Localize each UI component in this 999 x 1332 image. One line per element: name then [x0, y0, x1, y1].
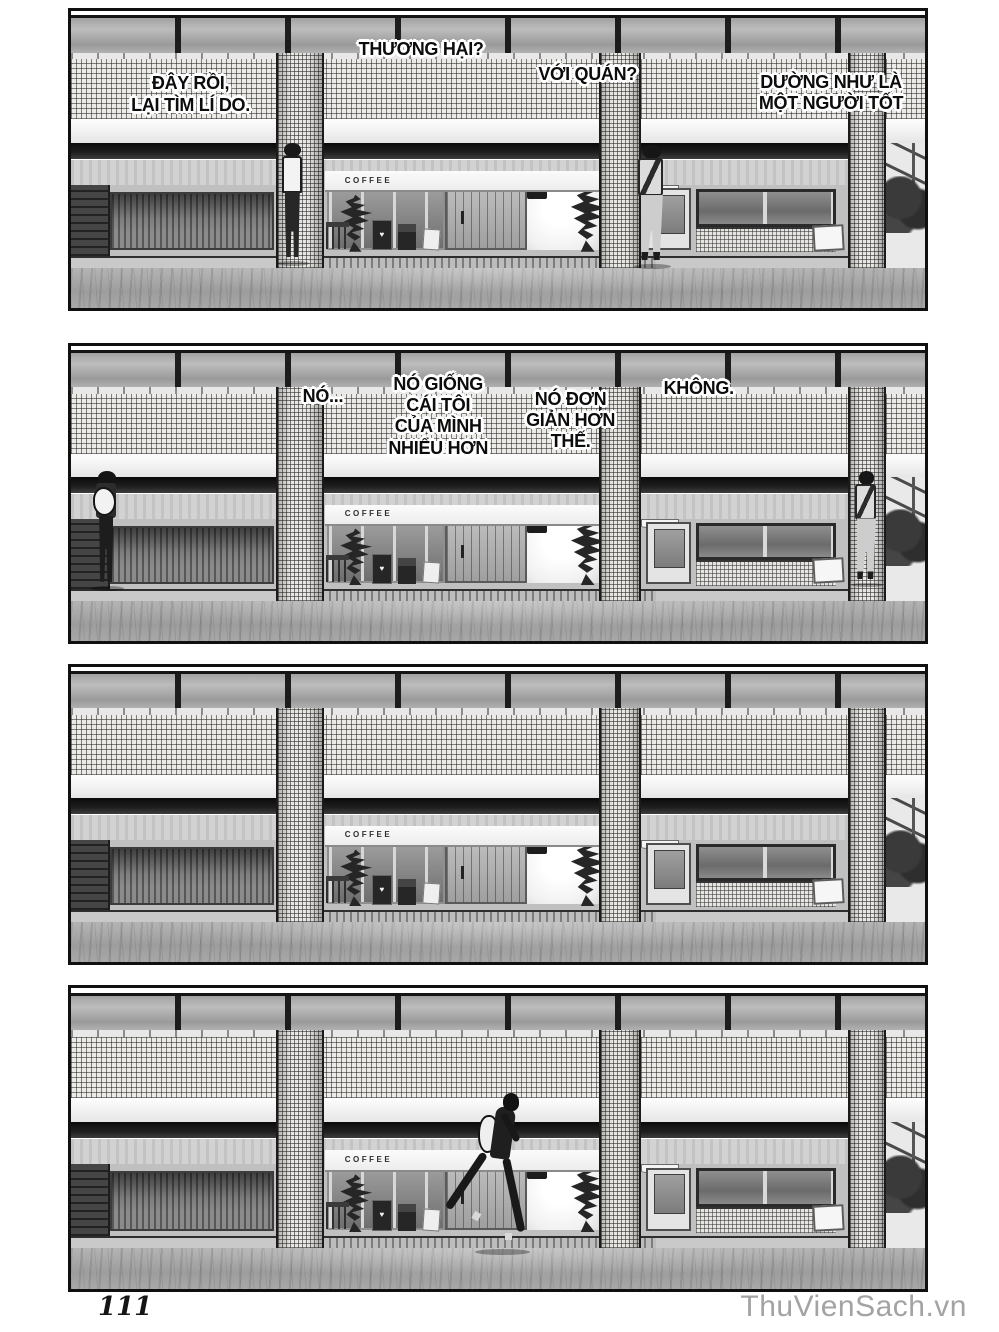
background-sky: [886, 143, 925, 268]
stool: [326, 555, 348, 582]
tiled-column-right: [599, 1030, 641, 1248]
stool: [326, 1202, 348, 1229]
menu-board: ♥: [372, 554, 392, 584]
bush: [886, 176, 925, 233]
figure-head: [859, 471, 875, 484]
small-sign: [422, 562, 441, 584]
panel-2: COFFEE ♥: [68, 343, 928, 644]
figure-head: [643, 145, 661, 159]
bush: [886, 1155, 925, 1213]
boy-figure: [633, 145, 672, 265]
girl-figure: [276, 143, 310, 262]
coffee-sign: COFFEE: [325, 505, 600, 526]
figure-torso: [638, 158, 662, 196]
tiled-column-far-right: [848, 708, 886, 922]
figure-foot: [471, 1211, 481, 1221]
street-ground: [71, 601, 925, 641]
small-chair: [398, 1204, 416, 1231]
coffee-sign: COFFEE: [325, 1150, 600, 1172]
boy-figure: [850, 471, 884, 583]
tiled-column-left: [276, 1030, 324, 1248]
page-number: 111: [98, 1292, 152, 1322]
small-sign: [422, 883, 441, 905]
speech-text: ĐÂY RỒI, LẠI TÌM LÍ DO.: [88, 73, 293, 115]
bush: [886, 830, 925, 887]
coffee-sign: COFFEE: [325, 171, 600, 193]
apartment-window: [696, 1168, 836, 1206]
closed-shop-shutter: [110, 1171, 274, 1230]
speech-text: VỚI QUÁN?: [519, 64, 656, 85]
coffee-shop-door: [445, 187, 527, 250]
small-chair: [398, 224, 416, 250]
leaning-board: [812, 1204, 844, 1232]
leaning-board: [812, 224, 844, 251]
tiled-column-far-right: [848, 1030, 886, 1248]
tiled-column-left: [276, 708, 324, 922]
closed-shop-shutter: [110, 847, 274, 905]
left-wall-end: [71, 185, 110, 256]
coffee-sign: COFFEE: [325, 826, 600, 847]
closed-shop-shutter: [110, 192, 274, 250]
small-sign: [422, 228, 441, 251]
street-scene: COFFEE ♥: [71, 667, 925, 962]
street-ground: [71, 268, 925, 308]
running-girl-figure: [472, 1093, 532, 1250]
panel-1: COFFEE ♥: [68, 8, 928, 311]
coffee-sign-text: COFFEE: [325, 831, 392, 839]
apartment-door: [646, 1168, 691, 1231]
speech-text: NÓ...: [280, 386, 365, 407]
leaning-board: [812, 878, 844, 905]
apartment-window: [696, 523, 836, 561]
small-chair: [398, 558, 416, 584]
closed-shop-shutter: [110, 526, 274, 584]
panel-3: COFFEE ♥: [68, 664, 928, 965]
apartment-door: [646, 522, 691, 584]
overhang-shadow: [71, 143, 925, 159]
menu-board: ♥: [372, 220, 392, 250]
speech-text: KHÔNG.: [643, 378, 754, 399]
figure-legs: [641, 195, 663, 260]
shoulder-bag: [93, 487, 117, 515]
figure-torso: [282, 156, 302, 193]
scene-slot: COFFEE ♥: [71, 667, 925, 962]
leaning-board: [812, 557, 844, 584]
balcony-slab: [71, 775, 925, 799]
coffee-shop-door: [445, 842, 527, 904]
bush: [886, 509, 925, 566]
balcony-slab: [71, 119, 925, 143]
speech-text: NÓ ĐƠN GIẢN HƠN THẾ.: [507, 389, 635, 453]
figure-front-leg: [502, 1157, 525, 1232]
small-chair: [398, 879, 416, 905]
menu-board: ♥: [372, 1200, 392, 1230]
speech-text: DƯỜNG NHƯ LÀ MỘT NGƯỜI TỐT: [741, 72, 920, 114]
background-sky: [886, 798, 925, 922]
coffee-sign-text: COFFEE: [325, 1156, 392, 1164]
figure-foot: [505, 1233, 512, 1240]
tiled-column-right: [599, 708, 641, 922]
left-wall-end: [71, 1164, 110, 1236]
speech-text: THƯƠNG HẠI?: [336, 39, 507, 60]
speech-text: NÓ GIỐNG CÁI TÔI CỦA MÌNH NHIỂU HƠN: [370, 374, 507, 459]
apartment-window: [696, 844, 836, 882]
background-sky: [886, 1122, 925, 1248]
coffee-sign-text: COFFEE: [325, 177, 392, 185]
tiled-balcony-parapet: [71, 1037, 925, 1100]
left-wall-end: [71, 840, 110, 911]
coffee-sign-text: COFFEE: [325, 510, 392, 518]
storefront-row: ♥: [71, 185, 925, 256]
overhang-shadow: [71, 798, 925, 814]
background-sky: [886, 477, 925, 601]
storefront-row: ♥: [71, 519, 925, 590]
figure-head: [503, 1093, 519, 1110]
apartment-window: [696, 189, 836, 227]
street-ground: [71, 922, 925, 962]
figure-legs: [99, 516, 113, 582]
figure-legs: [857, 518, 876, 579]
figure-legs: [285, 192, 300, 257]
coffee-shop-door: [445, 521, 527, 583]
manga-page: COFFEE ♥: [0, 0, 999, 1332]
stool: [326, 222, 348, 249]
small-sign: [422, 1208, 441, 1231]
figure-torso: [855, 484, 876, 520]
panel-4: COFFEE ♥: [68, 985, 928, 1292]
watermark: ThuVienSach.vn: [740, 1290, 967, 1324]
storefront-row: ♥: [71, 840, 925, 911]
tiled-balcony-parapet: [71, 715, 925, 777]
overhang-shadow: [71, 477, 925, 493]
tiled-column-left: [276, 387, 324, 601]
girl-figure: [90, 468, 126, 586]
stool: [326, 876, 348, 903]
menu-board: ♥: [372, 875, 392, 905]
apartment-door: [646, 843, 691, 905]
